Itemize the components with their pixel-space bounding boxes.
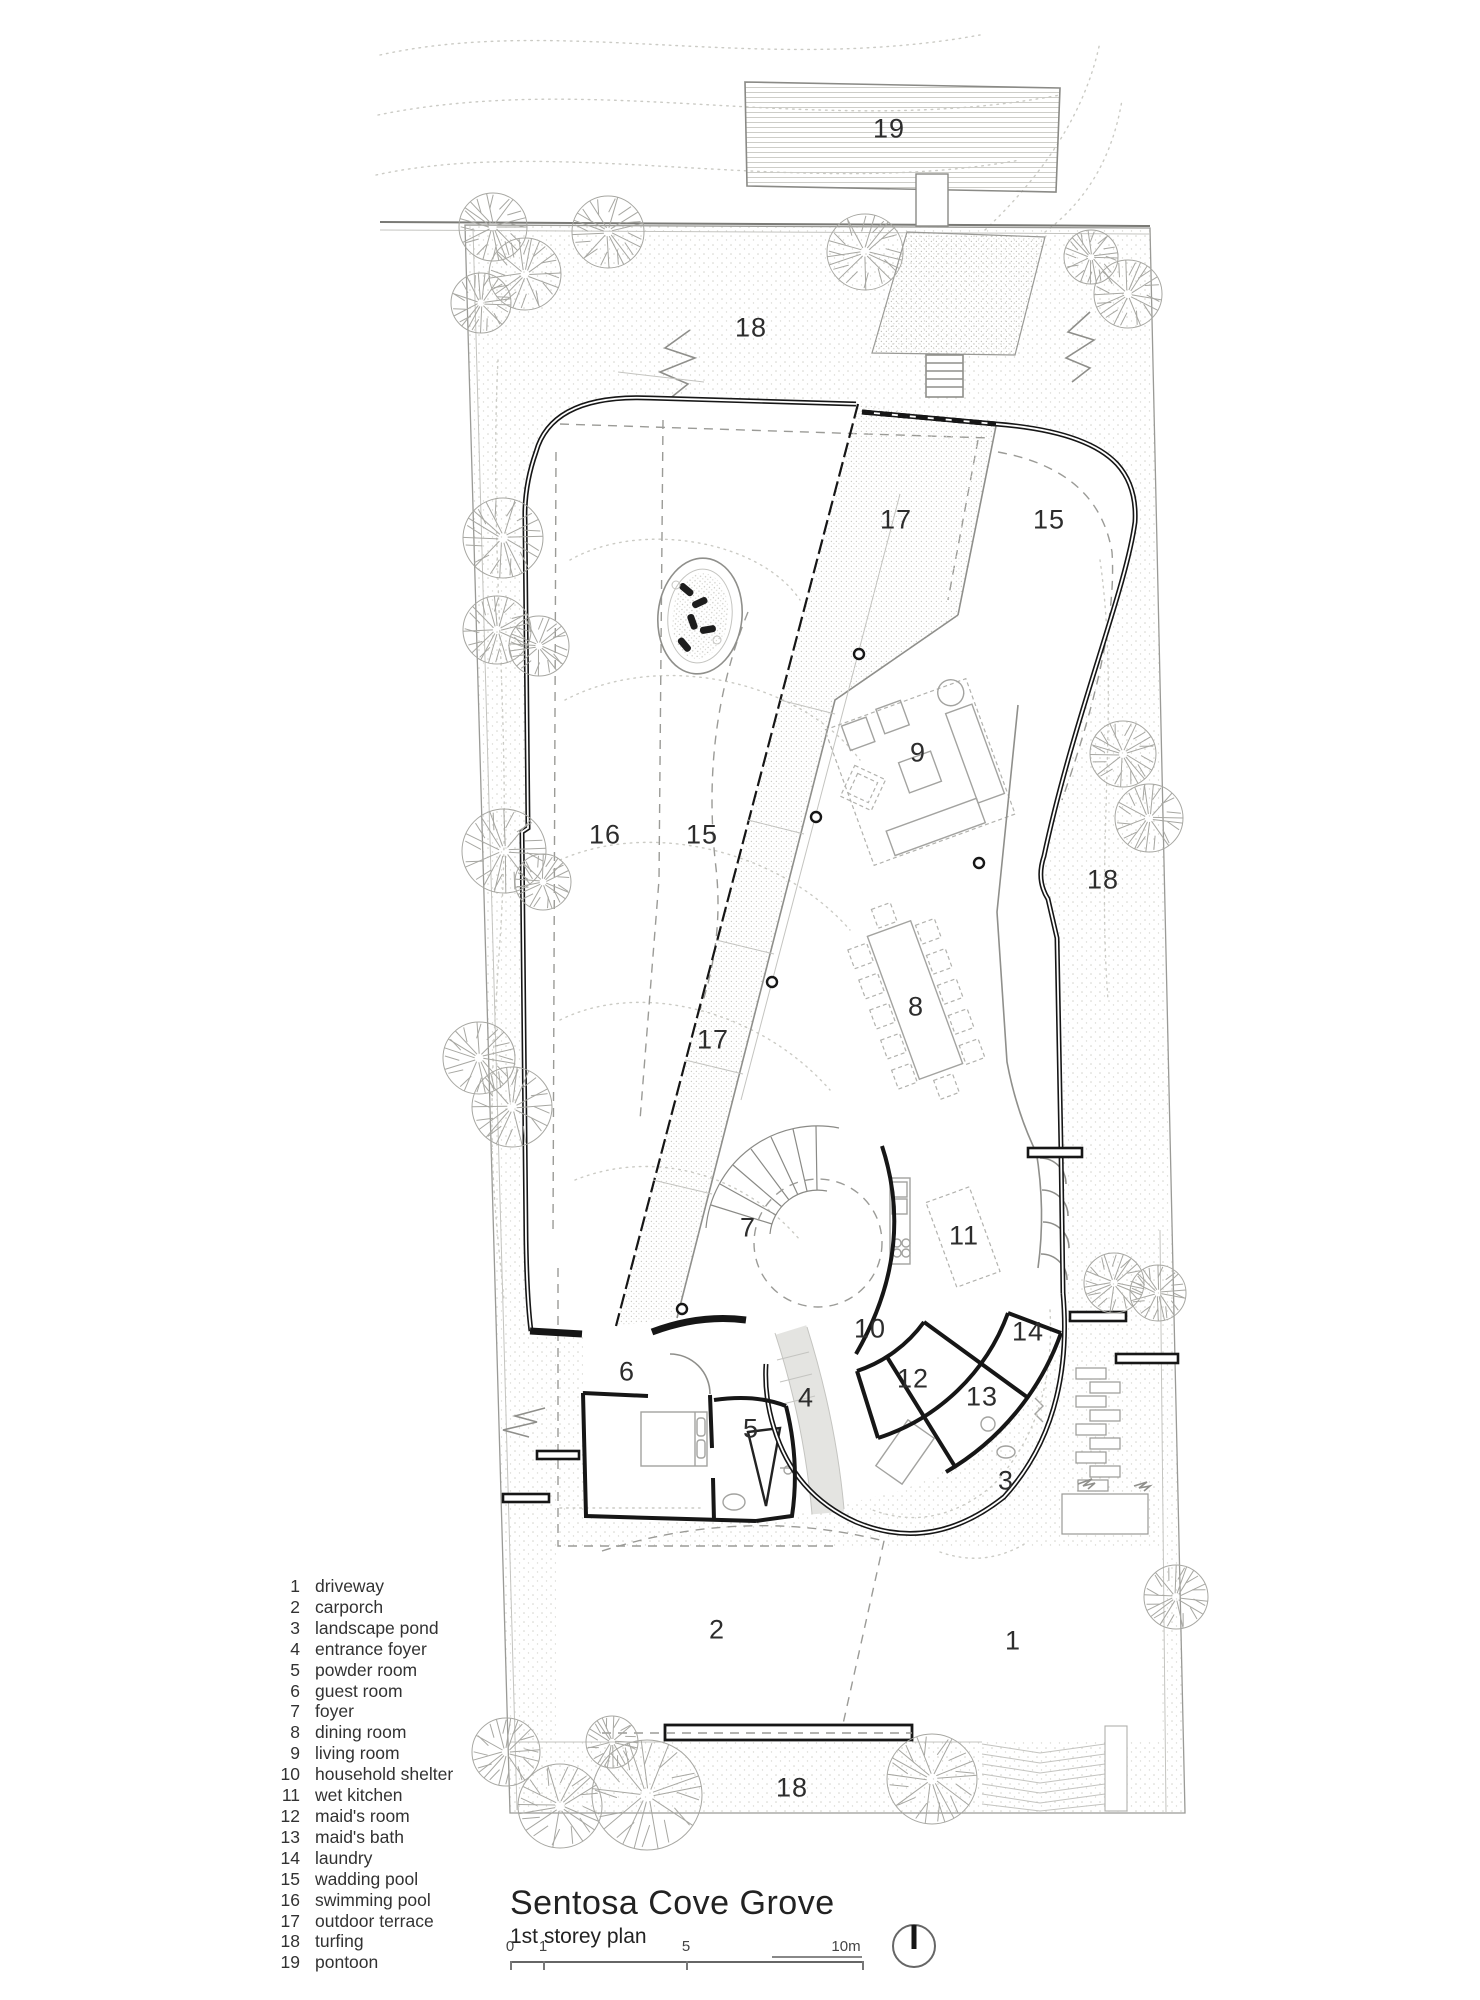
legend-item-12: 12maid's room bbox=[228, 1806, 453, 1827]
legend-item-number: 4 bbox=[228, 1639, 300, 1660]
scale-bar: 01510m bbox=[510, 1938, 890, 1980]
plan-label-18: 18 bbox=[776, 1773, 808, 1804]
legend-item-3: 3landscape pond bbox=[228, 1618, 453, 1639]
legend-item-number: 13 bbox=[228, 1827, 300, 1848]
legend-item-number: 14 bbox=[228, 1848, 300, 1869]
plan-label-13: 13 bbox=[966, 1382, 998, 1413]
plan-label-12: 12 bbox=[897, 1364, 929, 1395]
plan-label-10: 10 bbox=[854, 1314, 886, 1345]
scale-bar-line-upper bbox=[772, 1956, 862, 1958]
legend-item-label: living room bbox=[315, 1743, 400, 1764]
plan-label-8: 8 bbox=[908, 992, 924, 1023]
legend-item-label: landscape pond bbox=[315, 1618, 439, 1639]
legend: 1driveway2carporch3landscape pond4entran… bbox=[228, 1576, 453, 1973]
legend-item-label: maid's room bbox=[315, 1806, 410, 1827]
legend-item-7: 7foyer bbox=[228, 1701, 453, 1722]
plan-label-18: 18 bbox=[735, 313, 767, 344]
legend-item-label: outdoor terrace bbox=[315, 1911, 434, 1932]
legend-item-17: 17outdoor terrace bbox=[228, 1911, 453, 1932]
legend-item-11: 11wet kitchen bbox=[228, 1785, 453, 1806]
legend-item-number: 15 bbox=[228, 1869, 300, 1890]
legend-item-number: 12 bbox=[228, 1806, 300, 1827]
legend-item-label: guest room bbox=[315, 1681, 403, 1702]
legend-item-number: 17 bbox=[228, 1911, 300, 1932]
plan-label-18: 18 bbox=[1087, 865, 1119, 896]
legend-item-6: 6guest room bbox=[228, 1681, 453, 1702]
plan-label-11: 11 bbox=[949, 1221, 979, 1252]
legend-item-label: wet kitchen bbox=[315, 1785, 403, 1806]
legend-item-label: carporch bbox=[315, 1597, 383, 1618]
plan-label-1: 1 bbox=[1005, 1626, 1021, 1657]
legend-item-label: swimming pool bbox=[315, 1890, 431, 1911]
legend-item-14: 14laundry bbox=[228, 1848, 453, 1869]
plan-label-2: 2 bbox=[709, 1615, 725, 1646]
legend-item-number: 18 bbox=[228, 1931, 300, 1952]
legend-item-number: 19 bbox=[228, 1952, 300, 1973]
plan-title: Sentosa Cove Grove bbox=[510, 1884, 835, 1923]
legend-item-10: 10household shelter bbox=[228, 1764, 453, 1785]
plan-label-3: 3 bbox=[998, 1466, 1014, 1497]
plan-label-15: 15 bbox=[686, 820, 718, 851]
legend-item-4: 4entrance foyer bbox=[228, 1639, 453, 1660]
legend-item-number: 7 bbox=[228, 1701, 300, 1722]
plan-label-17: 17 bbox=[697, 1025, 729, 1056]
legend-item-number: 9 bbox=[228, 1743, 300, 1764]
legend-item-label: laundry bbox=[315, 1848, 372, 1869]
legend-item-label: wadding pool bbox=[315, 1869, 418, 1890]
scale-tick-10m bbox=[862, 1961, 864, 1970]
plan-label-4: 4 bbox=[798, 1383, 814, 1414]
plan-label-15: 15 bbox=[1033, 505, 1065, 536]
plan-label-14: 14 bbox=[1012, 1317, 1044, 1348]
scale-tick-1 bbox=[543, 1961, 545, 1970]
legend-item-18: 18turfing bbox=[228, 1931, 453, 1952]
plan-label-17: 17 bbox=[880, 505, 912, 536]
legend-item-label: maid's bath bbox=[315, 1827, 404, 1848]
legend-item-8: 8dining room bbox=[228, 1722, 453, 1743]
scale-tick-5 bbox=[686, 1961, 688, 1970]
legend-item-15: 15wadding pool bbox=[228, 1869, 453, 1890]
legend-item-5: 5powder room bbox=[228, 1660, 453, 1681]
scale-label-5: 5 bbox=[682, 1938, 690, 1955]
legend-item-label: turfing bbox=[315, 1931, 364, 1952]
legend-item-label: foyer bbox=[315, 1701, 354, 1722]
legend-item-number: 5 bbox=[228, 1660, 300, 1681]
site-plan-drawing bbox=[0, 0, 1480, 2000]
legend-item-label: pontoon bbox=[315, 1952, 378, 1973]
legend-item-9: 9living room bbox=[228, 1743, 453, 1764]
legend-item-number: 3 bbox=[228, 1618, 300, 1639]
plan-label-9: 9 bbox=[910, 738, 926, 769]
plan-label-5: 5 bbox=[743, 1414, 759, 1445]
legend-item-13: 13maid's bath bbox=[228, 1827, 453, 1848]
plan-label-16: 16 bbox=[589, 820, 621, 851]
legend-item-number: 8 bbox=[228, 1722, 300, 1743]
plan-label-19: 19 bbox=[873, 114, 905, 145]
driveway-area bbox=[556, 1546, 1163, 1742]
north-needle bbox=[912, 1925, 917, 1949]
scale-label-1: 1 bbox=[539, 1938, 547, 1955]
legend-item-label: powder room bbox=[315, 1660, 417, 1681]
pontoon-steps bbox=[926, 355, 963, 397]
legend-item-number: 2 bbox=[228, 1597, 300, 1618]
floor-plan-page: 1918171516159188177111014612134532118 1d… bbox=[0, 0, 1480, 2000]
legend-item-1: 1driveway bbox=[228, 1576, 453, 1597]
legend-item-label: driveway bbox=[315, 1576, 384, 1597]
scale-tick-0 bbox=[510, 1961, 512, 1970]
legend-item-number: 1 bbox=[228, 1576, 300, 1597]
legend-item-number: 10 bbox=[228, 1764, 300, 1785]
legend-item-number: 11 bbox=[228, 1785, 300, 1806]
legend-item-label: household shelter bbox=[315, 1764, 453, 1785]
plan-label-7: 7 bbox=[740, 1213, 756, 1244]
legend-item-number: 16 bbox=[228, 1890, 300, 1911]
legend-item-2: 2carporch bbox=[228, 1597, 453, 1618]
legend-item-label: dining room bbox=[315, 1722, 406, 1743]
plan-label-6: 6 bbox=[619, 1357, 635, 1388]
scale-label-10m: 10m bbox=[831, 1938, 860, 1955]
scale-label-0: 0 bbox=[506, 1938, 514, 1955]
legend-item-16: 16swimming pool bbox=[228, 1890, 453, 1911]
legend-item-number: 6 bbox=[228, 1681, 300, 1702]
north-arrow-icon bbox=[892, 1924, 936, 1968]
legend-item-19: 19pontoon bbox=[228, 1952, 453, 1973]
legend-item-label: entrance foyer bbox=[315, 1639, 427, 1660]
